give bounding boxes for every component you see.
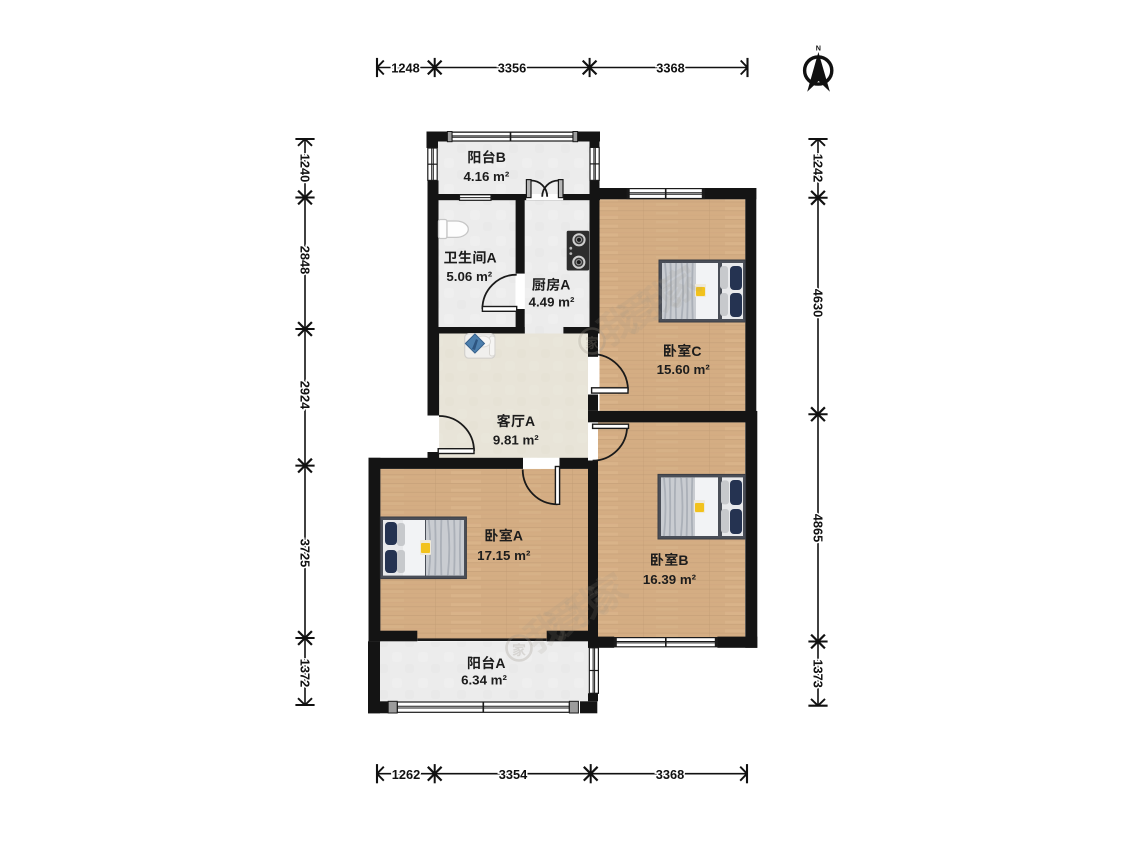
- svg-text:A: A: [525, 413, 535, 429]
- svg-text:N: N: [816, 44, 821, 53]
- svg-text:1372: 1372: [297, 659, 312, 687]
- svg-text:9.81 m²: 9.81 m²: [493, 433, 539, 448]
- svg-text:B: B: [678, 552, 688, 568]
- svg-text:3368: 3368: [656, 767, 684, 782]
- svg-text:1248: 1248: [391, 61, 419, 76]
- svg-text:4.16 m²: 4.16 m²: [463, 169, 509, 184]
- svg-text:1262: 1262: [392, 767, 420, 782]
- svg-text:17.15 m²: 17.15 m²: [477, 548, 531, 563]
- svg-text:2924: 2924: [297, 381, 312, 410]
- svg-text:1373: 1373: [810, 659, 825, 687]
- svg-text:A: A: [513, 528, 523, 544]
- svg-text:3725: 3725: [297, 539, 312, 567]
- svg-text:4.49 m²: 4.49 m²: [529, 294, 575, 309]
- svg-text:4865: 4865: [810, 514, 825, 542]
- svg-text:A: A: [560, 277, 570, 293]
- svg-text:4630: 4630: [810, 289, 825, 317]
- svg-text:A: A: [486, 250, 496, 266]
- svg-text:1240: 1240: [297, 154, 312, 182]
- svg-text:1242: 1242: [810, 154, 825, 182]
- svg-text:15.60 m²: 15.60 m²: [657, 362, 711, 377]
- svg-text:3356: 3356: [498, 61, 526, 76]
- svg-text:5.06 m²: 5.06 m²: [446, 269, 492, 284]
- svg-text:6.34 m²: 6.34 m²: [461, 673, 507, 688]
- svg-text:3368: 3368: [656, 61, 684, 76]
- svg-text:2848: 2848: [297, 246, 312, 274]
- svg-text:B: B: [496, 149, 506, 165]
- svg-text:C: C: [691, 343, 701, 359]
- svg-text:3354: 3354: [499, 767, 528, 782]
- svg-text:A: A: [495, 655, 505, 671]
- svg-text:16.39 m²: 16.39 m²: [643, 572, 697, 587]
